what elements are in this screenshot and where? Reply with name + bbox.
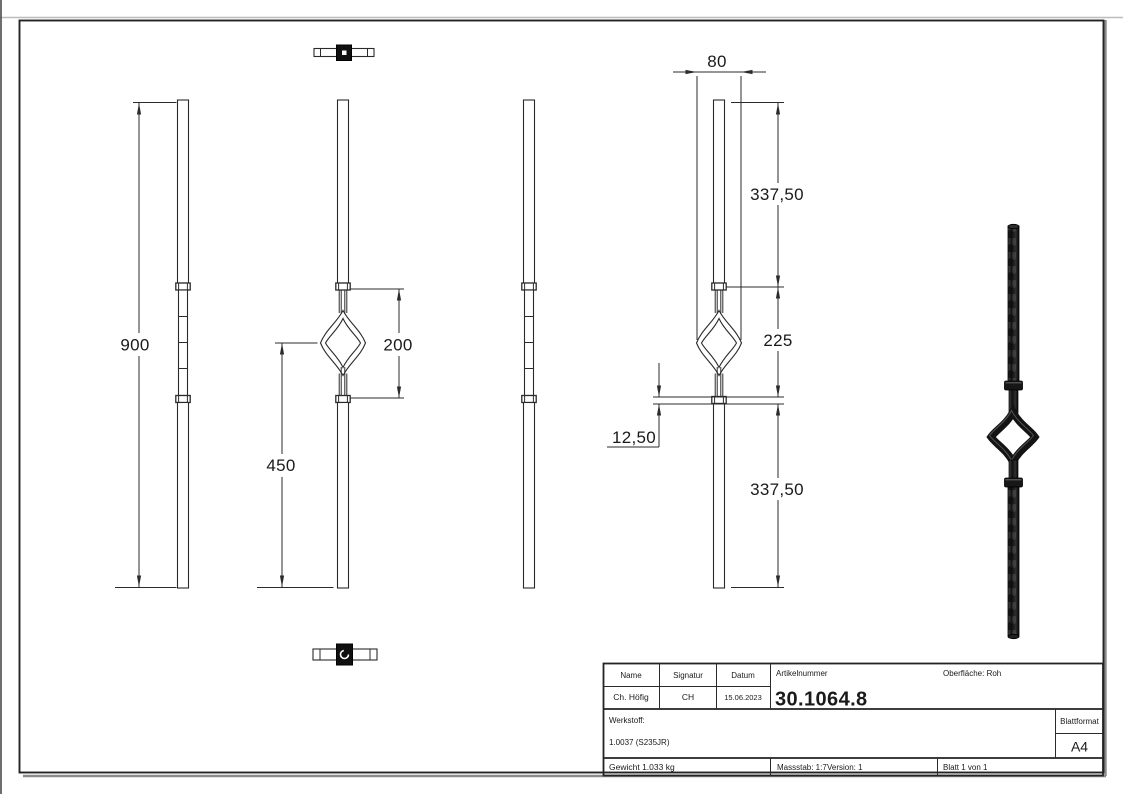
hammered-shaft xyxy=(524,403,535,589)
blatt-value: Blatt 1 von 1 xyxy=(943,763,988,772)
datum-label: Datum xyxy=(731,671,755,680)
blattformat-value: A4 xyxy=(1071,739,1088,755)
hammered-shaft xyxy=(524,100,535,283)
dim-overall-length: 900 xyxy=(120,336,149,355)
artikelnummer-label: Artikelnummer xyxy=(776,669,828,678)
hammered-shaft xyxy=(714,404,725,589)
collar xyxy=(336,396,350,403)
name-value: Ch. Höfig xyxy=(613,692,649,702)
collar xyxy=(522,396,536,403)
square-section xyxy=(337,644,353,665)
werkstoff-label: Werkstoff: xyxy=(609,716,645,725)
hammered-shaft xyxy=(714,100,725,283)
datum-value: 15.06.2023 xyxy=(724,693,762,702)
hammered-shaft xyxy=(178,100,189,283)
dim-top-section: 337,50 xyxy=(750,185,804,204)
gewicht-value: Gewicht 1.033 kg xyxy=(609,762,675,772)
signatur-value: CH xyxy=(682,692,694,702)
signatur-label: Signatur xyxy=(673,671,703,680)
massstab-value: Massstab: 1:7 xyxy=(777,763,827,772)
version-value: Version: 1 xyxy=(827,763,863,772)
oberflaeche-value: Oberfläche: Roh xyxy=(943,669,1001,678)
collar xyxy=(176,283,190,290)
werkstoff-value: 1.0037 (S235JR) xyxy=(609,738,670,747)
collar xyxy=(336,283,350,290)
collar xyxy=(712,283,726,290)
side-view-right xyxy=(522,100,536,588)
dim-lower-half: 450 xyxy=(266,456,295,475)
drawing-canvas: 900 450 200 80 337,50 xyxy=(0,0,1123,794)
collar xyxy=(522,283,536,290)
artikelnummer-value: 30.1064.8 xyxy=(775,689,868,711)
name-label: Name xyxy=(620,671,642,680)
dim-center-section: 225 xyxy=(763,331,792,350)
dim-ornament-width: 80 xyxy=(707,52,727,71)
dim-ornament-length: 200 xyxy=(383,336,412,355)
collar xyxy=(176,396,190,403)
collar xyxy=(712,397,726,404)
side-view-left xyxy=(176,100,190,588)
blattformat-label: Blattformat xyxy=(1060,717,1099,726)
dim-bottom-section: 337,50 xyxy=(750,480,804,499)
hammered-shaft xyxy=(338,403,349,589)
hammered-shaft xyxy=(178,403,189,589)
dim-collar-height: 12,50 xyxy=(612,428,656,447)
hammered-shaft xyxy=(338,100,349,283)
